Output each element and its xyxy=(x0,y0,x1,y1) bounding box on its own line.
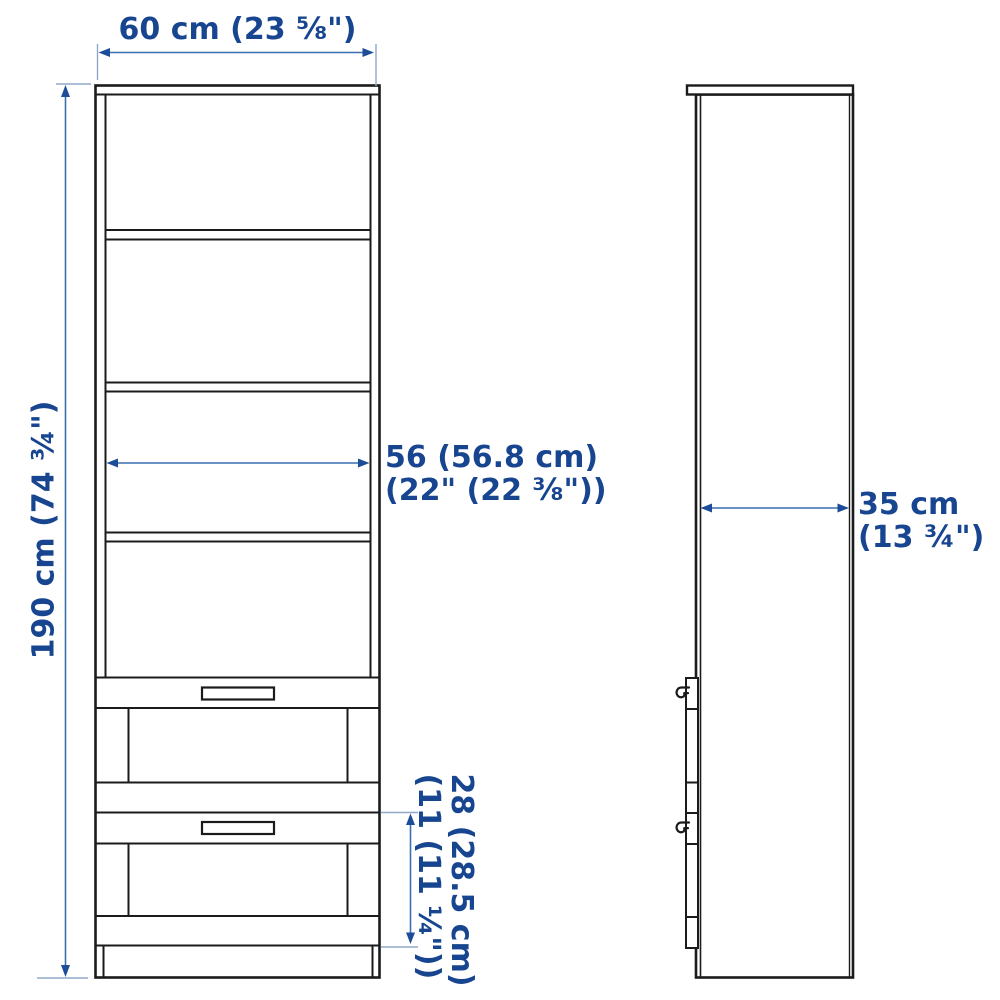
front-view xyxy=(96,86,380,978)
side-view xyxy=(677,86,853,978)
depth-dimension-label: 35 cm (13 ¾") xyxy=(858,488,984,554)
side-top-panel xyxy=(687,86,853,95)
shelf-width-dimension-label: 56 (56.8 cm) (22" (22 ⅜")) xyxy=(385,441,607,507)
width-dimension-label: 60 cm (23 ⅝") xyxy=(95,13,380,46)
side-body xyxy=(696,95,853,978)
shelf-width-line-2: (22" (22 ⅜")) xyxy=(385,474,607,507)
depth-line-1: 35 cm xyxy=(858,488,984,521)
drawer-height-dimension-label: 28 (28.5 cm) (11 (11 ¼")) xyxy=(412,773,478,986)
depth-line-2: (13 ¾") xyxy=(858,521,984,554)
side-drawer-strip xyxy=(686,678,698,948)
drawer-2-handle xyxy=(202,822,274,834)
product-dimension-diagram: 60 cm (23 ⅝") 190 cm (74 ¾") 56 (56.8 cm… xyxy=(0,0,1000,1000)
drawer-1-handle xyxy=(202,688,274,700)
width-dimension-arrow xyxy=(98,44,377,86)
shelf-width-line-1: 56 (56.8 cm) xyxy=(385,441,607,474)
drawer-height-line-1: 28 (28.5 cm) xyxy=(445,773,478,986)
height-dimension-label: 190 cm (74 ¾") xyxy=(28,401,61,660)
drawer-height-line-2: (11 (11 ¼")) xyxy=(412,773,445,986)
